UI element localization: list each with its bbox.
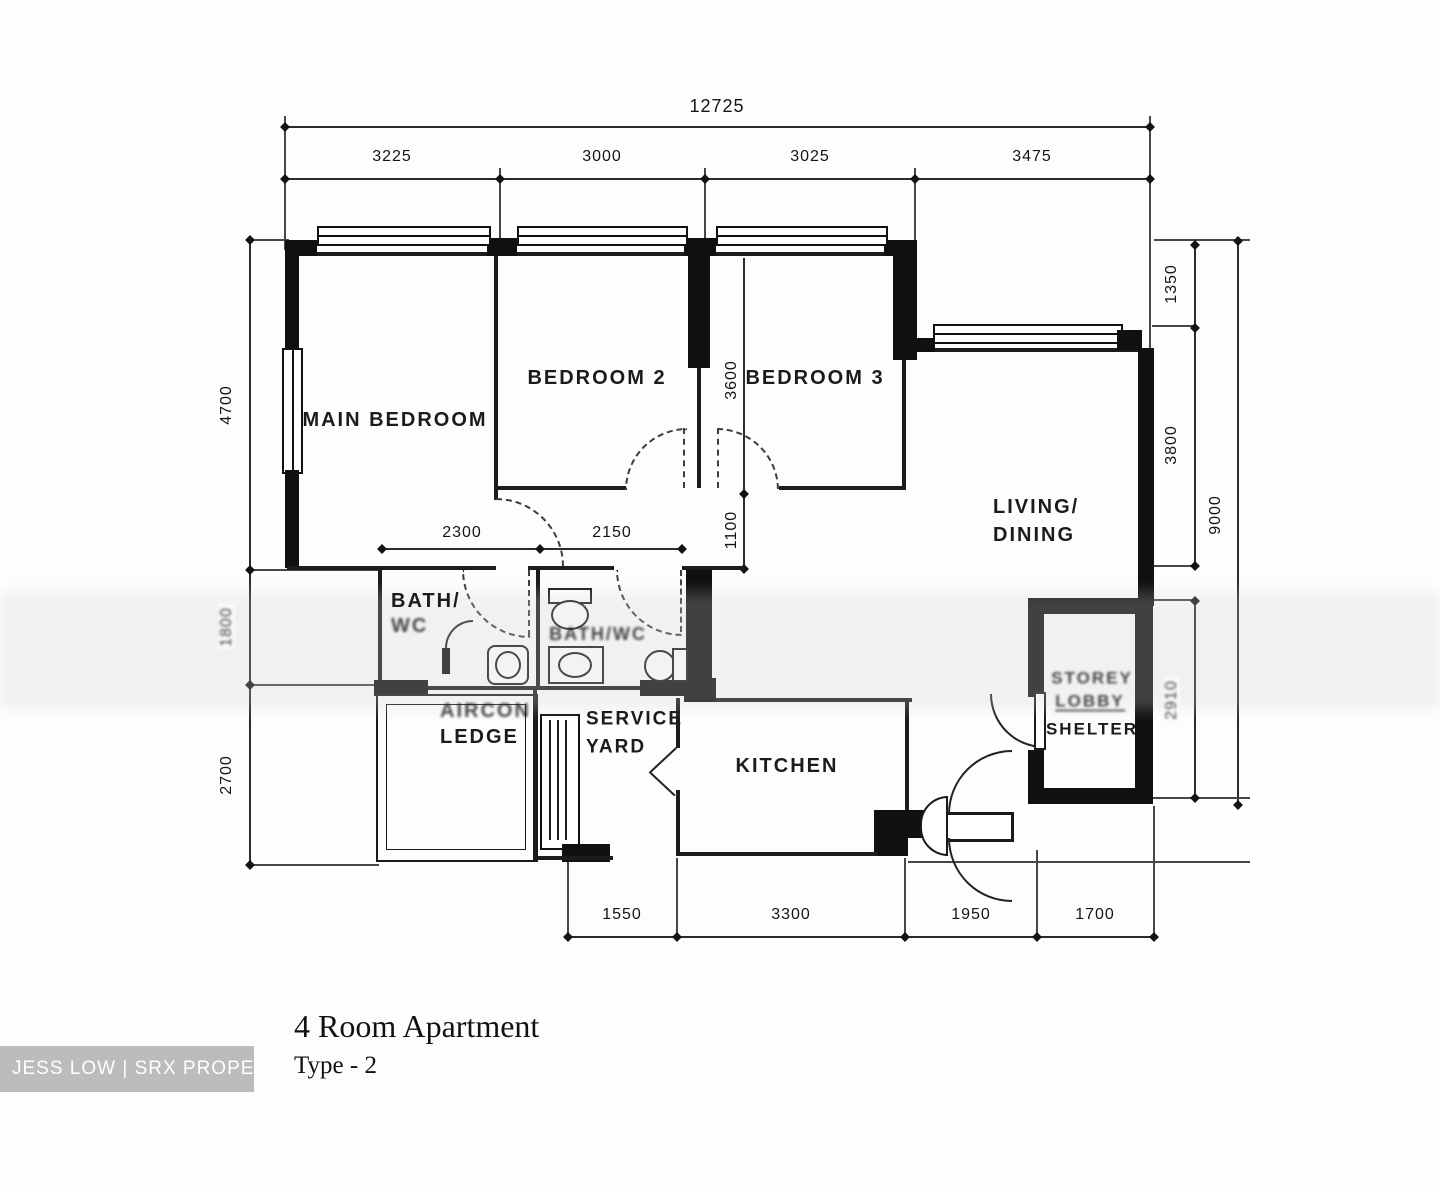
wall	[688, 256, 710, 368]
wall	[528, 566, 614, 570]
wall	[884, 240, 917, 256]
plan-title: 4 Room Apartment	[294, 1008, 539, 1045]
dim-marker	[245, 565, 255, 575]
door-leaf-bedroom2	[683, 428, 685, 488]
entrance-gate-leaf	[920, 796, 948, 856]
room-label-shelter-line1: STOREY	[1051, 670, 1133, 687]
dim-marker	[1032, 932, 1042, 942]
extension-line	[567, 862, 569, 940]
bifold-door	[650, 747, 677, 772]
wall	[915, 348, 1142, 352]
room-label-bedroom3: BEDROOM 3	[745, 368, 884, 388]
wall	[533, 856, 613, 860]
louver-slat	[549, 720, 551, 840]
dim-marker	[900, 932, 910, 942]
wall	[1138, 348, 1154, 606]
wall	[684, 238, 716, 256]
dim-marker	[700, 174, 710, 184]
dim-left-1: 4700	[219, 382, 235, 428]
wall	[893, 256, 917, 360]
window	[317, 226, 491, 246]
wall	[697, 368, 701, 488]
extension-line	[1153, 806, 1155, 940]
dim-marker	[377, 544, 387, 554]
window	[933, 324, 1123, 344]
window-mullion	[518, 235, 687, 237]
dim-bottom-2: 3300	[768, 907, 814, 923]
door-arc-entrance-lower	[948, 838, 1012, 902]
wall	[779, 486, 906, 490]
dim-bedroom-wall: 3600	[724, 357, 740, 403]
dim-marker	[1190, 561, 1200, 571]
dim-bottom-1: 1550	[599, 907, 645, 923]
dim-marker	[739, 489, 749, 499]
wall	[380, 566, 458, 570]
dim-top-1: 3225	[369, 149, 415, 165]
room-label-aircon-line1: AIRCON	[440, 701, 531, 721]
plan-subtitle: Type - 2	[294, 1052, 377, 1080]
room-label-bedroom2: BEDROOM 2	[527, 368, 666, 388]
dim-marker	[1233, 236, 1243, 246]
dim-top-4: 3475	[1009, 149, 1055, 165]
room-label-main-bedroom: MAIN BEDROOM	[302, 410, 487, 430]
dim-hall-width: 1100	[724, 508, 740, 552]
door-arc-main-bedroom	[496, 498, 564, 566]
window	[282, 348, 303, 474]
window	[517, 226, 688, 246]
room-label-living: LIVING/	[993, 497, 1079, 517]
room-label-bath1-line1: BATH/	[391, 591, 461, 611]
room-label-aircon-line2: LEDGE	[440, 727, 519, 747]
bifold-door	[649, 771, 676, 796]
extension-line	[251, 864, 379, 866]
dim-left-3: 2700	[219, 752, 235, 798]
wall	[915, 338, 935, 352]
shelter-wall	[1028, 788, 1152, 804]
dim-left-2: 1800	[219, 604, 235, 650]
dim-marker	[677, 544, 687, 554]
room-label-service-line2: YARD	[586, 738, 646, 757]
wall	[494, 256, 498, 500]
room-label-bath1-line2: WC	[391, 616, 428, 636]
room-label-shelter-line3: SHELTER	[1046, 721, 1138, 738]
dim-marker	[1190, 793, 1200, 803]
dim-bottom-3: 1950	[948, 907, 994, 923]
wall	[1117, 330, 1142, 350]
dim-overall-height: 9000	[1208, 492, 1224, 538]
louver-panel	[540, 714, 580, 850]
watermark-band	[0, 592, 1440, 710]
extension-line	[1149, 116, 1151, 350]
door-leaf-bedroom3	[717, 428, 719, 488]
door-arc-bedroom2	[625, 428, 687, 490]
wall	[285, 240, 317, 256]
dim-right-3: 2910	[1164, 677, 1180, 723]
door-arc-entrance-upper	[948, 750, 1012, 814]
window	[716, 226, 888, 246]
dim-marker	[245, 235, 255, 245]
wall	[905, 698, 909, 814]
wall	[285, 470, 299, 568]
dim-marker	[1145, 122, 1155, 132]
dim-marker	[1190, 323, 1200, 333]
extension-line	[904, 858, 906, 940]
louver-slat	[557, 720, 559, 840]
dim-marker	[1190, 240, 1200, 250]
dim-marker	[1149, 932, 1159, 942]
wall	[676, 852, 878, 856]
floor-plan: MAIN BEDROOM BEDROOM 2 BEDROOM 3 LIVING/…	[0, 0, 1440, 1191]
room-label-dining: DINING	[993, 525, 1075, 545]
dim-line	[743, 258, 745, 570]
dim-line	[568, 936, 1154, 938]
dim-line	[1237, 240, 1239, 806]
wall	[285, 252, 917, 256]
dim-marker	[280, 174, 290, 184]
wall	[676, 790, 680, 856]
dim-right-1: 1350	[1164, 261, 1180, 307]
room-label-shelter-line2: LOBBY	[1055, 693, 1125, 712]
dim-line	[1194, 244, 1196, 566]
dim-marker	[910, 174, 920, 184]
dim-top-2: 3000	[579, 149, 625, 165]
room-label-service-line1: SERVICE	[586, 710, 683, 729]
dim-line	[249, 240, 251, 866]
dim-marker	[672, 932, 682, 942]
wall	[494, 486, 626, 490]
dim-bottom-4: 1700	[1072, 907, 1118, 923]
dim-marker	[245, 860, 255, 870]
window-mullion	[318, 235, 490, 237]
dim-marker	[1233, 800, 1243, 810]
wall	[285, 256, 299, 348]
dim-bath1-width: 2300	[439, 525, 485, 541]
wall	[533, 690, 537, 860]
extension-line	[251, 239, 289, 241]
window-mullion	[934, 333, 1122, 335]
dim-right-2: 3800	[1164, 422, 1180, 468]
room-label-kitchen: KITCHEN	[736, 756, 839, 776]
dim-marker	[1145, 174, 1155, 184]
dim-marker	[495, 174, 505, 184]
extension-line	[1036, 850, 1038, 940]
room-label-bath2: BATH/WC	[549, 625, 647, 643]
extension-line	[676, 858, 678, 940]
window-mullion	[717, 235, 887, 237]
watermark-text: JESS LOW | SRX PROPERTY	[12, 1058, 295, 1080]
wall	[902, 360, 906, 488]
dim-overall-width: 12725	[686, 97, 747, 115]
window-mullion	[292, 349, 294, 473]
dim-bath2-width: 2150	[589, 525, 635, 541]
watermark-badge: JESS LOW | SRX PROPERTY	[0, 1046, 254, 1092]
dim-line	[285, 126, 1151, 128]
dim-line	[285, 178, 1151, 180]
louver-slat	[565, 720, 567, 840]
dim-marker	[563, 932, 573, 942]
wall	[487, 238, 517, 256]
dim-top-3: 3025	[787, 149, 833, 165]
dim-marker	[280, 122, 290, 132]
door-arc-bedroom3	[717, 428, 779, 490]
